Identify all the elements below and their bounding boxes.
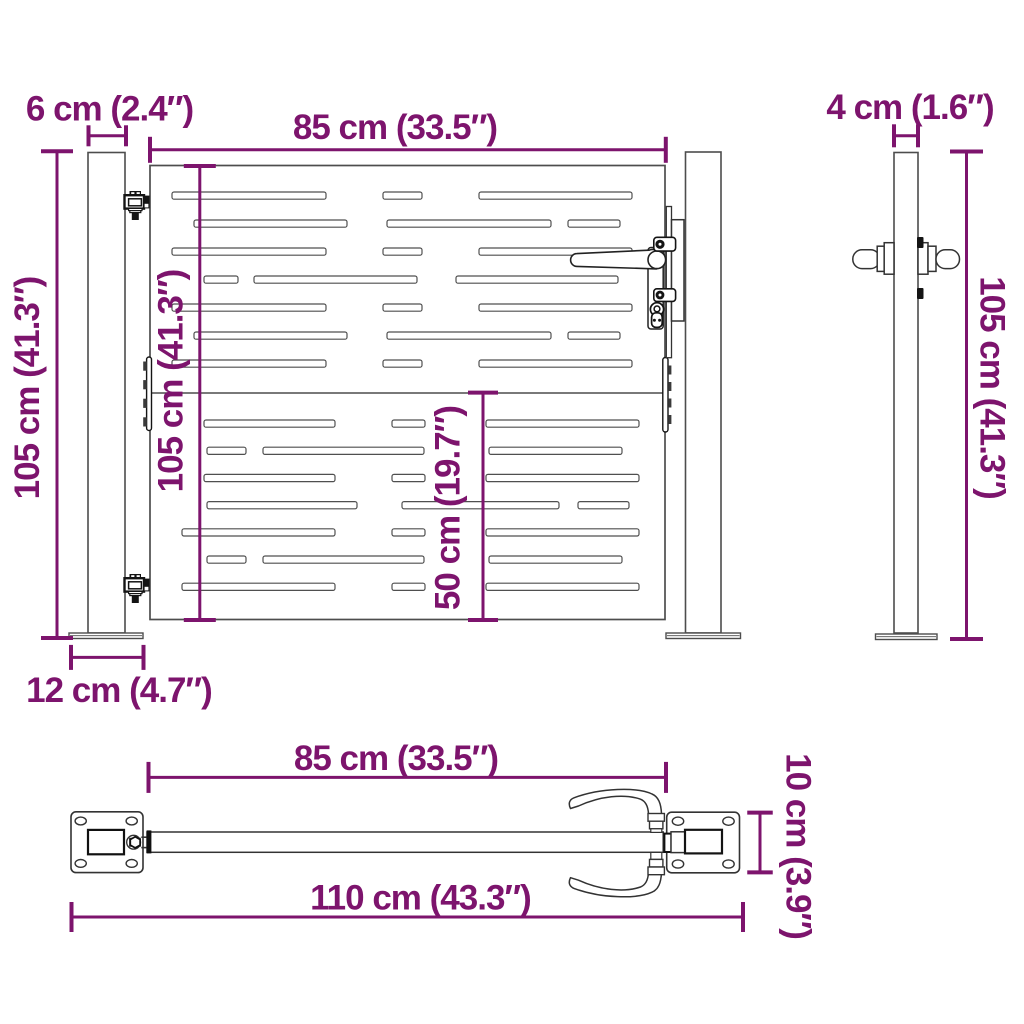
svg-text:12 cm (4.7″): 12 cm (4.7″) (26, 671, 212, 710)
svg-text:10 cm (3.9″): 10 cm (3.9″) (779, 753, 818, 939)
svg-text:6 cm (2.4″): 6 cm (2.4″) (26, 90, 193, 129)
svg-text:110 cm (43.3″): 110 cm (43.3″) (310, 879, 531, 918)
svg-text:85 cm (33.5″): 85 cm (33.5″) (293, 108, 497, 147)
svg-text:105 cm (41.3″): 105 cm (41.3″) (8, 277, 47, 500)
svg-text:85 cm (33.5″): 85 cm (33.5″) (294, 739, 498, 778)
svg-text:50 cm (19.7″): 50 cm (19.7″) (429, 406, 468, 610)
svg-text:105 cm (41.3″): 105 cm (41.3″) (152, 270, 191, 493)
svg-text:105 cm (41.3″): 105 cm (41.3″) (973, 276, 1012, 499)
svg-text:4 cm (1.6″): 4 cm (1.6″) (826, 88, 993, 127)
